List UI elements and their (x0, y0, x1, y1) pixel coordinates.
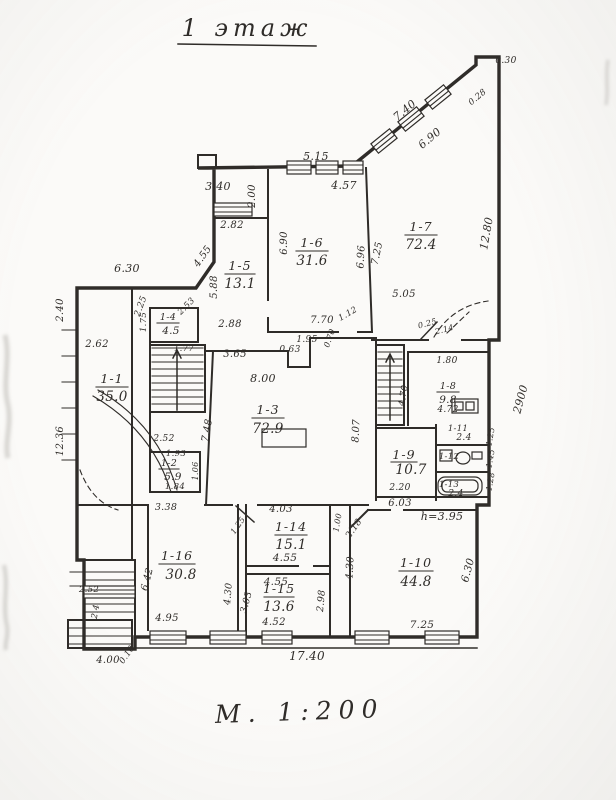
title-text: 1 этаж (182, 14, 313, 42)
dim-label: 3.38 (155, 502, 177, 513)
room-area: 72.9 (252, 421, 283, 437)
room-area: 2.4 (447, 489, 463, 499)
dim-label: 8.07 (350, 419, 362, 443)
dim-label: 7.25 (410, 619, 435, 631)
dim-label: 2.18 (344, 517, 365, 541)
floor-plan-canvas: 1 этаж (0, 0, 616, 800)
ceiling-height-label: h=3.95 (421, 510, 464, 523)
dim-label: 7.25 (370, 241, 386, 266)
dim-label: 6.90 (279, 231, 290, 255)
room-label-1-6: 1-631.6 (296, 235, 328, 269)
dim-label: 4.57 (330, 179, 357, 192)
dim-label: 12.80 (477, 216, 496, 251)
room-area: 13.6 (263, 599, 294, 615)
dim-label: 3.40 (205, 180, 231, 193)
dim-label: 1.25 (229, 515, 247, 536)
room-number: 1-7 (409, 219, 432, 234)
dim-label: 2.53 (175, 296, 197, 318)
top-left-annex (198, 155, 216, 168)
dim-label: 6.03 (388, 498, 411, 509)
dim-label: 17.40 (289, 649, 325, 663)
room-number: 1-2 (161, 458, 177, 469)
dim-label: 3.03 (238, 590, 254, 614)
room-area: 10.7 (395, 462, 426, 478)
dim-label: 4.72 (436, 405, 458, 415)
room-area: 72.4 (405, 237, 436, 253)
window (150, 631, 186, 644)
room-area: 44.8 (399, 574, 431, 590)
room-number: 1-14 (275, 519, 307, 534)
dim-label: 12.36 (55, 426, 66, 456)
dim-label: 1.84 (165, 482, 185, 492)
room-number: 1-5 (228, 258, 251, 273)
dim-label: 4.03 (268, 504, 292, 515)
scan-smudges (4, 60, 608, 650)
dim-label: 1.06 (191, 461, 200, 480)
dim-label: 2.40 (55, 298, 66, 323)
dim-label: 1.93 (166, 449, 186, 459)
dim-label: 4.55 (272, 552, 298, 564)
dim-label: 1.45 (484, 448, 496, 468)
dim-label: 4.30 (344, 556, 356, 581)
room-label-1-5: 1-513.1 (224, 258, 255, 292)
dim-label: 2.52 (78, 585, 99, 595)
dim-label: 2.62 (84, 339, 108, 350)
dim-label: 6.30 (459, 557, 477, 584)
dim-label: 4.95 (154, 613, 178, 624)
dim-label: 1.80 (436, 356, 457, 366)
room-number: 1-12 (439, 452, 459, 462)
dim-label: 6.30 (114, 262, 140, 275)
room-number: 1-4 (160, 312, 176, 323)
dim-label: 6.90 (416, 125, 444, 151)
room-label-1-7: 1-772.4 (405, 219, 437, 253)
dim-label: 2.98 (315, 589, 328, 613)
dim-label: 2.20 (388, 483, 410, 493)
dim-label: 5.88 (209, 275, 220, 298)
dim-label: 0.30 (495, 56, 516, 66)
dim-label: 0.28 (467, 87, 489, 108)
window (355, 631, 389, 644)
room-number: 1-8 (440, 381, 456, 392)
room-number: 1-16 (161, 548, 193, 563)
room-area: 30.8 (165, 567, 196, 583)
room-label-1-14: 1-1415.1 (275, 519, 307, 553)
window (425, 85, 451, 109)
room-area: 35.0 (96, 389, 127, 405)
dim-label: 7.48 (200, 418, 215, 443)
facade-ticks (62, 330, 84, 586)
dim-label: 3.65 (223, 349, 246, 360)
room-label-1-9: 1-910.7 (391, 447, 427, 478)
scale-text: М. 1:200 (213, 694, 384, 729)
dim-label: 5.15 (303, 150, 329, 163)
dim-label: 2.82 (219, 220, 243, 231)
dim-label: 8.00 (250, 372, 276, 385)
dim-label: 6.42 (139, 567, 156, 593)
scale-note: М. 1:200 (213, 694, 384, 729)
dim-label: 1.12 (337, 305, 359, 324)
room-number: 1-6 (300, 235, 323, 250)
room-label-1-8: 1-89.8 (437, 381, 459, 406)
room-area: 4.5 (161, 325, 180, 337)
room-area: 15.1 (275, 537, 306, 553)
room-area: 13.1 (224, 276, 255, 292)
dim-label: 2.00 (247, 184, 258, 209)
dim-label: 4.52 (261, 617, 285, 628)
drawing-title: 1 этаж (178, 14, 316, 46)
dim-label: 2900 (510, 383, 530, 416)
window (210, 631, 246, 644)
room-area: 2.4 (455, 433, 471, 443)
dim-label: 1.00 (331, 512, 343, 532)
room-label-1-16: 1-1630.8 (159, 548, 197, 583)
scanned-floor-plan-page: 1 этаж (0, 0, 616, 800)
dim-label: 0.63 (279, 345, 300, 355)
dim-label: 1.95 (296, 335, 317, 345)
room-number: 1-9 (392, 447, 415, 462)
staircase-secondary (378, 352, 402, 420)
window (425, 631, 459, 644)
dim-label: 5.05 (392, 289, 415, 300)
dim-label: 6.96 (355, 245, 367, 269)
window (371, 129, 397, 153)
window (262, 631, 292, 644)
room-number: 1-3 (256, 402, 279, 417)
dim-label: 1.77 (174, 344, 194, 354)
room-number: 1-10 (400, 555, 432, 570)
window (343, 161, 363, 174)
room-number: 1-1 (100, 371, 123, 386)
room-label-1-1: 1-135.0 (96, 371, 128, 405)
room-label-1-12: 1-12 (439, 452, 459, 462)
dim-label: 1.75 (139, 312, 149, 332)
dim-label: 1.25 (484, 426, 496, 446)
room-label-1-4: 1-44.5 (157, 312, 180, 337)
dim-label: 4.30 (222, 582, 235, 606)
dim-label: 2.4 (90, 604, 103, 621)
room-area: 31.6 (296, 253, 327, 269)
dim-label: 7.70 (310, 315, 334, 326)
dim-label: 2.52 (152, 434, 174, 444)
dim-label: 2.88 (217, 319, 241, 330)
room-label-1-3: 1-372.9 (252, 402, 284, 437)
room-label-1-11: 1-112.4 (448, 424, 472, 443)
room-label-1-10: 1-1044.8 (399, 555, 433, 590)
dim-label: 4.55 (263, 576, 289, 588)
staircase-main (152, 348, 203, 410)
dim-label: 1.28 (484, 471, 496, 491)
